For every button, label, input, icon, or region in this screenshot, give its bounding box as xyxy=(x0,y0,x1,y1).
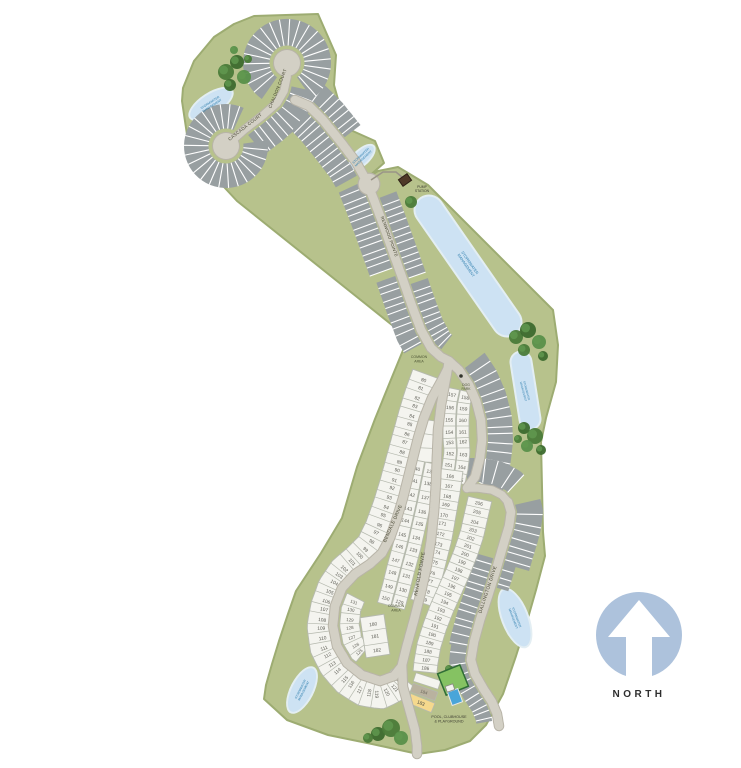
svg-text:NORTH: NORTH xyxy=(612,689,665,700)
svg-text:155: 155 xyxy=(445,417,454,423)
svg-text:109: 109 xyxy=(317,626,326,632)
svg-text:129: 129 xyxy=(346,617,354,623)
svg-text:152: 152 xyxy=(446,451,455,458)
svg-text:AREA: AREA xyxy=(414,359,424,363)
svg-text:153: 153 xyxy=(446,440,455,447)
svg-text:119: 119 xyxy=(373,690,379,698)
svg-text:108: 108 xyxy=(318,617,327,624)
svg-text:159: 159 xyxy=(459,406,468,413)
svg-text:160: 160 xyxy=(459,418,468,424)
svg-text:110: 110 xyxy=(319,635,328,642)
svg-text:163: 163 xyxy=(459,452,468,459)
svg-text:POOL, CLUBHOUSE: POOL, CLUBHOUSE xyxy=(431,715,467,719)
svg-text:161: 161 xyxy=(459,430,467,436)
svg-text:154: 154 xyxy=(445,430,453,436)
svg-text:& PLAYGROUND: & PLAYGROUND xyxy=(434,720,463,724)
svg-text:166: 166 xyxy=(446,473,455,480)
svg-text:187: 187 xyxy=(422,657,431,664)
svg-text:156: 156 xyxy=(446,405,455,412)
svg-text:167: 167 xyxy=(444,483,453,490)
svg-text:STATION: STATION xyxy=(415,189,430,193)
svg-text:162: 162 xyxy=(459,439,468,446)
svg-text:186: 186 xyxy=(421,665,430,672)
svg-text:118: 118 xyxy=(366,689,373,698)
svg-text:AREA: AREA xyxy=(391,608,401,612)
svg-text:PARK: PARK xyxy=(462,387,472,391)
